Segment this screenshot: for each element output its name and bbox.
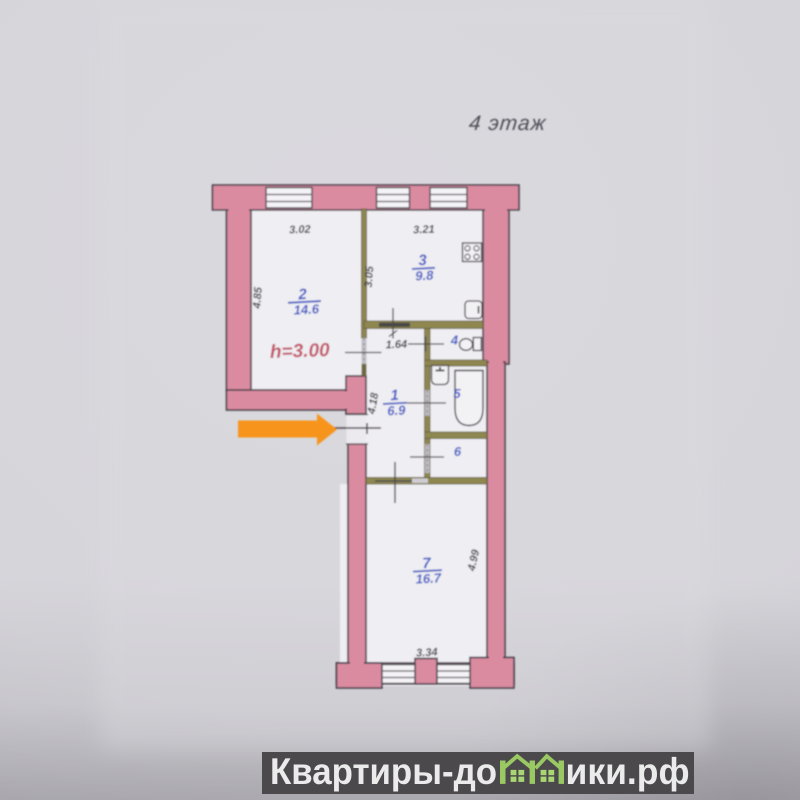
svg-text:6: 6 [454, 444, 462, 459]
svg-text:Квартиры-до: Квартиры-до [270, 751, 497, 792]
svg-text:3.34: 3.34 [416, 646, 438, 659]
svg-text:h=3.00: h=3.00 [270, 340, 331, 363]
svg-text:1.64: 1.64 [385, 339, 407, 352]
svg-text:2: 2 [297, 286, 308, 304]
svg-text:3.21: 3.21 [413, 224, 435, 237]
svg-text:7: 7 [422, 555, 432, 572]
svg-text:3: 3 [418, 252, 428, 269]
svg-text:9.8: 9.8 [415, 267, 435, 283]
svg-text:5: 5 [453, 386, 461, 401]
svg-text:1: 1 [390, 387, 399, 404]
svg-text:14.6: 14.6 [293, 301, 320, 317]
svg-text:3.05: 3.05 [363, 265, 377, 288]
svg-text:ики.рф: ики.рф [566, 751, 690, 792]
svg-text:3.02: 3.02 [289, 224, 311, 237]
svg-text:4 этаж: 4 этаж [468, 112, 548, 135]
svg-text:16.7: 16.7 [415, 570, 442, 586]
svg-text:4: 4 [450, 333, 459, 348]
svg-text:6.9: 6.9 [387, 402, 407, 418]
svg-text:4.85: 4.85 [251, 286, 265, 310]
